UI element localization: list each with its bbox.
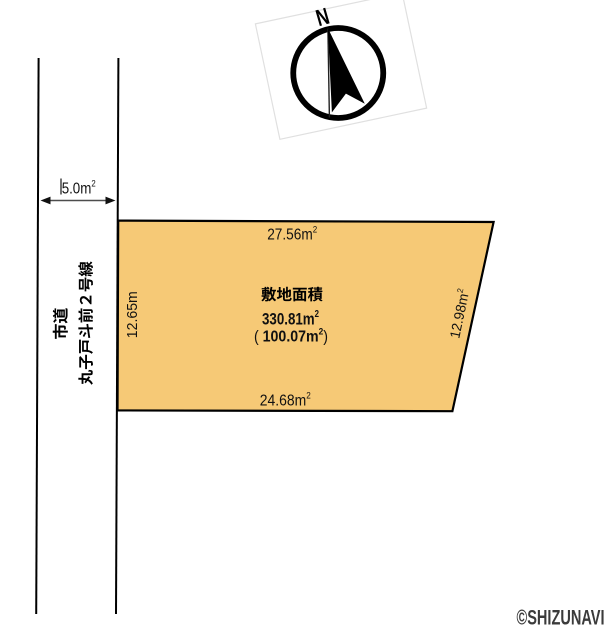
svg-text:( 100.07m2): ( 100.07m2) [254, 325, 328, 345]
svg-text:27.56m2: 27.56m2 [267, 223, 317, 243]
svg-text:12.65m: 12.65m [125, 291, 141, 338]
svg-text:330.81m2: 330.81m2 [262, 309, 319, 328]
svg-text:24.68m2: 24.68m2 [260, 390, 311, 410]
svg-text:5.0m2: 5.0m2 [62, 178, 96, 198]
svg-text:©SHIZUNAVI: ©SHIZUNAVI [517, 605, 605, 629]
